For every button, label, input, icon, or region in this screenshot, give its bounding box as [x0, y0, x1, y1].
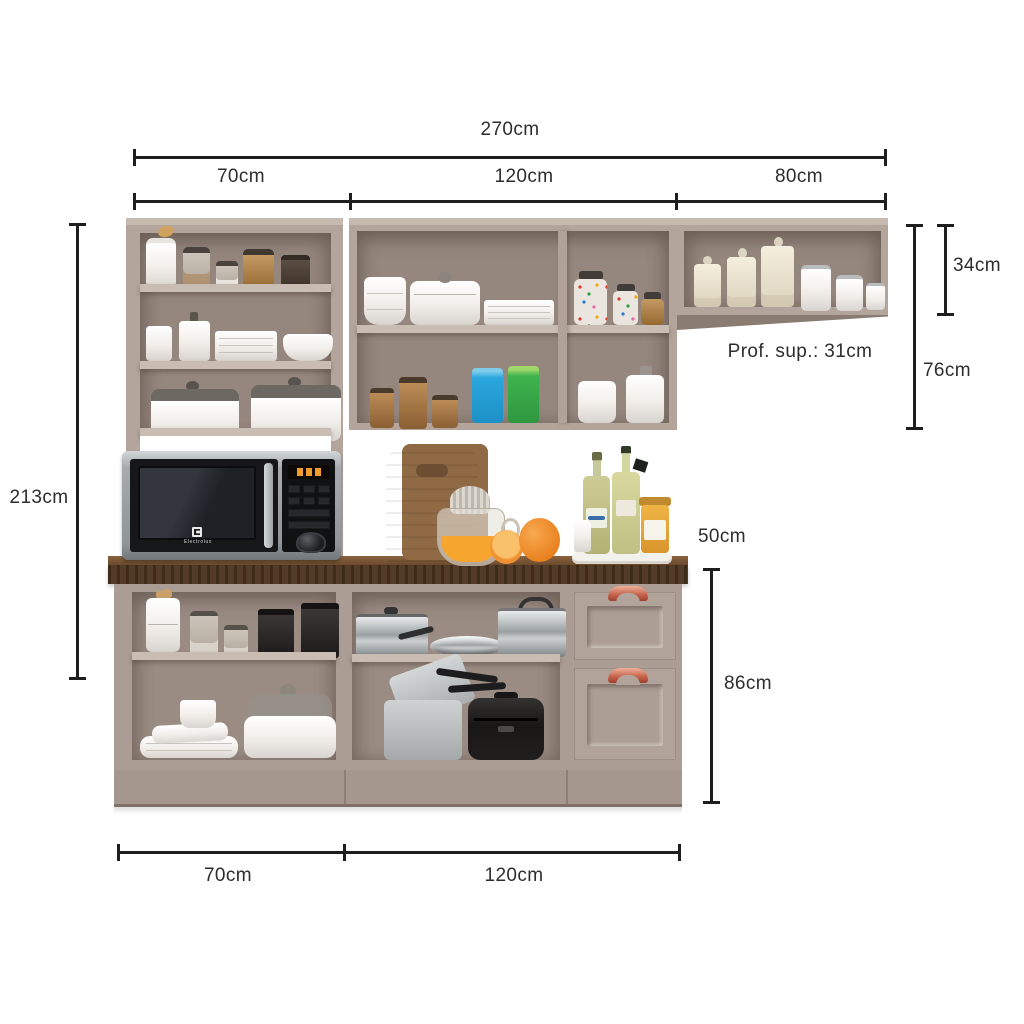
base-shelf-left [132, 652, 336, 660]
ceramic-canister-small [694, 264, 721, 307]
plate-stack [215, 331, 277, 361]
orange-whole [519, 518, 560, 562]
counter-front-face [108, 565, 688, 584]
dim-line-base-height [710, 568, 713, 804]
white-jar [146, 238, 176, 289]
plinth-seam [566, 770, 568, 804]
microwave-button [288, 497, 300, 505]
display-digits [306, 468, 312, 476]
oil-bottle [612, 472, 640, 554]
drawer-handle-copper [608, 586, 648, 601]
board-handle-slot [416, 464, 448, 477]
clip-jar-small [866, 283, 885, 310]
plate-seam [488, 318, 550, 319]
dim-line-height-total [76, 223, 79, 680]
microwave-brand-text: Electrolux [170, 539, 226, 545]
bowl [283, 334, 333, 361]
wooden-canister-short [432, 395, 458, 428]
kitchen-cabinet-dimension-diagram: Electrolux [0, 0, 1024, 1024]
drawer-panel [587, 684, 663, 746]
logo-glyph [194, 529, 200, 535]
dim-label-seg-left: 70cm [217, 166, 265, 188]
black-canister [258, 609, 294, 658]
dim-label-upper-depth: Prof. sup.: 31cm [728, 341, 873, 363]
cabinet-bottom-face [677, 315, 888, 330]
microwave-button-row [288, 521, 330, 529]
white-canister [179, 321, 210, 361]
wall-cabinet-shelf [357, 325, 669, 333]
dim-label-seg-right: 80cm [775, 166, 823, 188]
cabinet-divider [558, 231, 567, 423]
microwave: Electrolux [122, 451, 341, 560]
black-canister-tall [301, 603, 339, 658]
plinth [114, 770, 682, 807]
plate-seam [219, 345, 274, 346]
glass-jar [190, 611, 218, 657]
open-back-gap [140, 436, 331, 452]
blue-cup [472, 368, 503, 423]
salt-shaker [574, 520, 591, 552]
lid-seam [414, 294, 476, 295]
dim-label-total-width: 270cm [480, 119, 539, 141]
tall-cabinet-bottom-board [140, 428, 331, 436]
drawer-handle-copper [608, 668, 648, 683]
cabinet-top-edge [677, 218, 888, 225]
bottle-label [616, 500, 636, 516]
wooden-canister [370, 388, 394, 428]
display-digits [315, 468, 321, 476]
plate-seam [146, 750, 232, 751]
dim-label-upper-height: 76cm [923, 360, 971, 382]
casserole-dish [410, 281, 480, 325]
microwave-door: Electrolux [130, 459, 278, 552]
cooker-lid-seam [474, 718, 538, 721]
cooker-latch [498, 726, 514, 732]
lid-knob [438, 272, 452, 283]
handle-cutout [616, 675, 640, 685]
orange-half [490, 530, 523, 564]
dim-line-bottom-segments [117, 851, 681, 854]
microwave-button [288, 485, 300, 493]
oil-bottle-neck [622, 453, 630, 473]
aluminium-pot [384, 700, 462, 760]
dim-line-total-width [133, 156, 887, 159]
rice-cooker [468, 698, 544, 760]
white-canister [626, 375, 664, 423]
dim-tick [349, 193, 352, 210]
bowl-seam [367, 293, 404, 294]
microwave-knob [296, 532, 326, 553]
dim-label-base-left-width: 70cm [204, 865, 252, 887]
clip-jar-large [801, 265, 831, 311]
cabinet-top-edge [349, 218, 677, 225]
microwave-button-row [288, 509, 330, 517]
drawer-panel [587, 606, 663, 648]
white-pitcher [578, 381, 616, 423]
honey-label [644, 520, 666, 540]
microwave-control-panel [282, 459, 335, 552]
plate-seam [488, 312, 550, 313]
green-cup [508, 366, 539, 423]
dim-line-top-segments [133, 200, 887, 203]
label-text-bar [588, 516, 605, 520]
handle-cutout [616, 593, 640, 603]
dim-tick [675, 193, 678, 210]
jar-label-line [148, 624, 178, 625]
white-canister [146, 326, 172, 361]
dim-label-hutch-height: 34cm [953, 255, 1001, 277]
door-handle-bar [264, 463, 273, 548]
casserole-body [244, 716, 336, 758]
dim-label-counter-module-width: 50cm [698, 526, 746, 548]
dim-label-base-height: 86cm [724, 673, 772, 695]
clip-jar-medium [836, 275, 863, 311]
dim-label-base-mid-width: 120cm [484, 865, 543, 887]
plate-seam [488, 306, 550, 307]
tall-cabinet-shelf [140, 284, 331, 292]
white-cup [180, 700, 216, 728]
electrolux-logo-icon [192, 527, 202, 537]
plinth-seam [344, 770, 346, 804]
frying-pan [430, 636, 504, 656]
microwave-button [318, 497, 330, 505]
dim-line-upper-height [913, 224, 916, 430]
flour-jar [146, 598, 180, 652]
honey-jar [641, 505, 669, 553]
microwave-button [318, 485, 330, 493]
plate-seam [219, 352, 274, 353]
snack-jar-small [641, 299, 664, 325]
candy-jar-large [574, 279, 607, 325]
plate-stack [484, 300, 554, 325]
ceramic-canister-medium [727, 257, 756, 307]
bowl-seam [367, 309, 404, 310]
tall-cabinet-shelf [140, 361, 331, 369]
microwave-button [303, 485, 315, 493]
dim-label-height-total: 213cm [9, 487, 68, 509]
plate-seam [219, 338, 274, 339]
cabinet-top-edge [126, 218, 343, 225]
wooden-canister-tall [399, 377, 427, 429]
dim-tick [343, 844, 346, 861]
bottle-tag [633, 458, 649, 472]
digital-display [288, 465, 329, 479]
dim-line-hutch-height [944, 224, 947, 316]
microwave-button [303, 497, 315, 505]
stainless-pot-tall [498, 608, 566, 657]
floor-shadow [114, 807, 682, 814]
candy-jar-medium [613, 291, 638, 325]
dim-label-seg-mid: 120cm [494, 166, 553, 188]
bowl-stack [364, 277, 406, 325]
ceramic-canister-large [761, 246, 794, 307]
display-digits [297, 468, 303, 476]
